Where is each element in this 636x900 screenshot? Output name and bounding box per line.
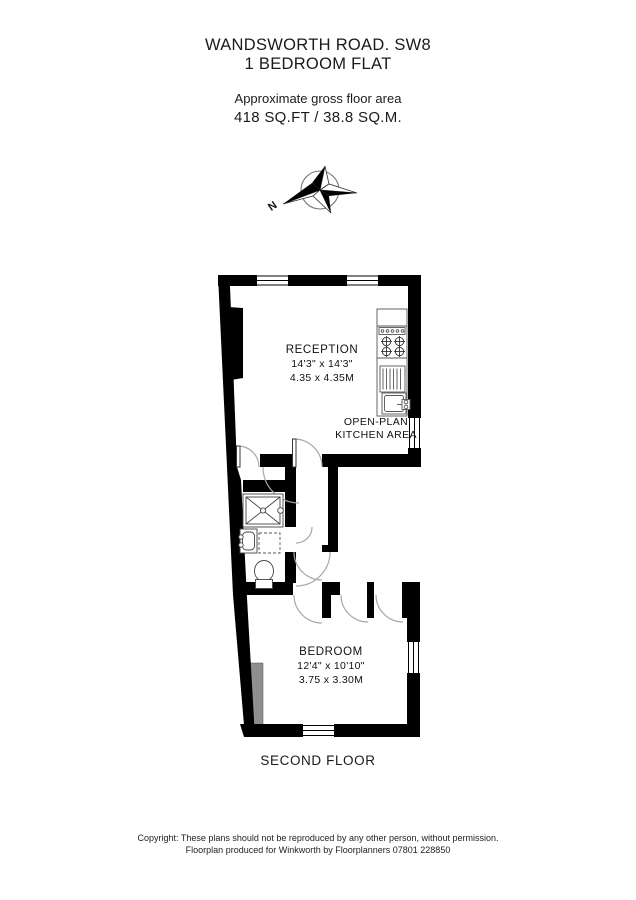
- window-reception-top-right: [347, 275, 378, 286]
- copyright-line1: Copyright: These plans should not be rep…: [0, 832, 636, 844]
- kitchen-label-line2: KITCHEN AREA: [335, 429, 417, 442]
- reception-dims-imperial: 14'3" x 14'3": [286, 357, 359, 371]
- reception-label: RECEPTION 14'3" x 14'3" 4.35 x 4.35M: [286, 343, 359, 385]
- floor-label: SECOND FLOOR: [0, 753, 636, 768]
- washbasin-icon: [239, 529, 257, 553]
- window-bedroom-right: [407, 642, 420, 673]
- window-bedroom-bottom: [303, 724, 334, 737]
- north-label: N: [266, 199, 279, 213]
- kitchen-label-line1: OPEN-PLAN: [335, 416, 417, 429]
- shower-icon: [243, 494, 283, 527]
- door-arc-bedroom: [294, 595, 322, 623]
- bedroom-label: BEDROOM 12'4" x 10'10" 3.75 x 3.30M: [297, 645, 365, 687]
- reception-name: RECEPTION: [286, 343, 359, 357]
- kitchen-units: [377, 309, 410, 416]
- reception-dims-metric: 4.35 x 4.35M: [286, 371, 359, 385]
- door-leaf-reception-main: [293, 439, 297, 467]
- door-arc-reception-left: [238, 446, 259, 467]
- bedroom-dims-metric: 3.75 x 3.30M: [297, 673, 365, 687]
- kitchen-area-label: OPEN-PLAN KITCHEN AREA: [335, 416, 417, 442]
- copyright-footer: Copyright: These plans should not be rep…: [0, 832, 636, 856]
- bedroom-dims-imperial: 12'4" x 10'10": [297, 659, 365, 673]
- bedroom-name: BEDROOM: [297, 645, 365, 659]
- door-arc-closet-2: [376, 595, 403, 622]
- door-leaf-reception-left: [237, 446, 241, 467]
- door-arc-bathroom: [296, 527, 312, 543]
- appliance-space: [259, 533, 280, 553]
- door-arc-reception-main: [294, 439, 322, 467]
- window-reception-top-left: [257, 275, 288, 286]
- door-arc-lobby-right: [294, 552, 322, 580]
- compass-rose-icon: N: [266, 166, 357, 214]
- door-arc-closet-1: [341, 595, 368, 622]
- floorplan-page: WANDSWORTH ROAD. SW8 1 BEDROOM FLAT Appr…: [0, 0, 636, 900]
- toilet-icon: [255, 561, 274, 589]
- copyright-line2: Floorplan produced for Winkworth by Floo…: [0, 844, 636, 856]
- door-arc-lobby-left: [296, 552, 330, 586]
